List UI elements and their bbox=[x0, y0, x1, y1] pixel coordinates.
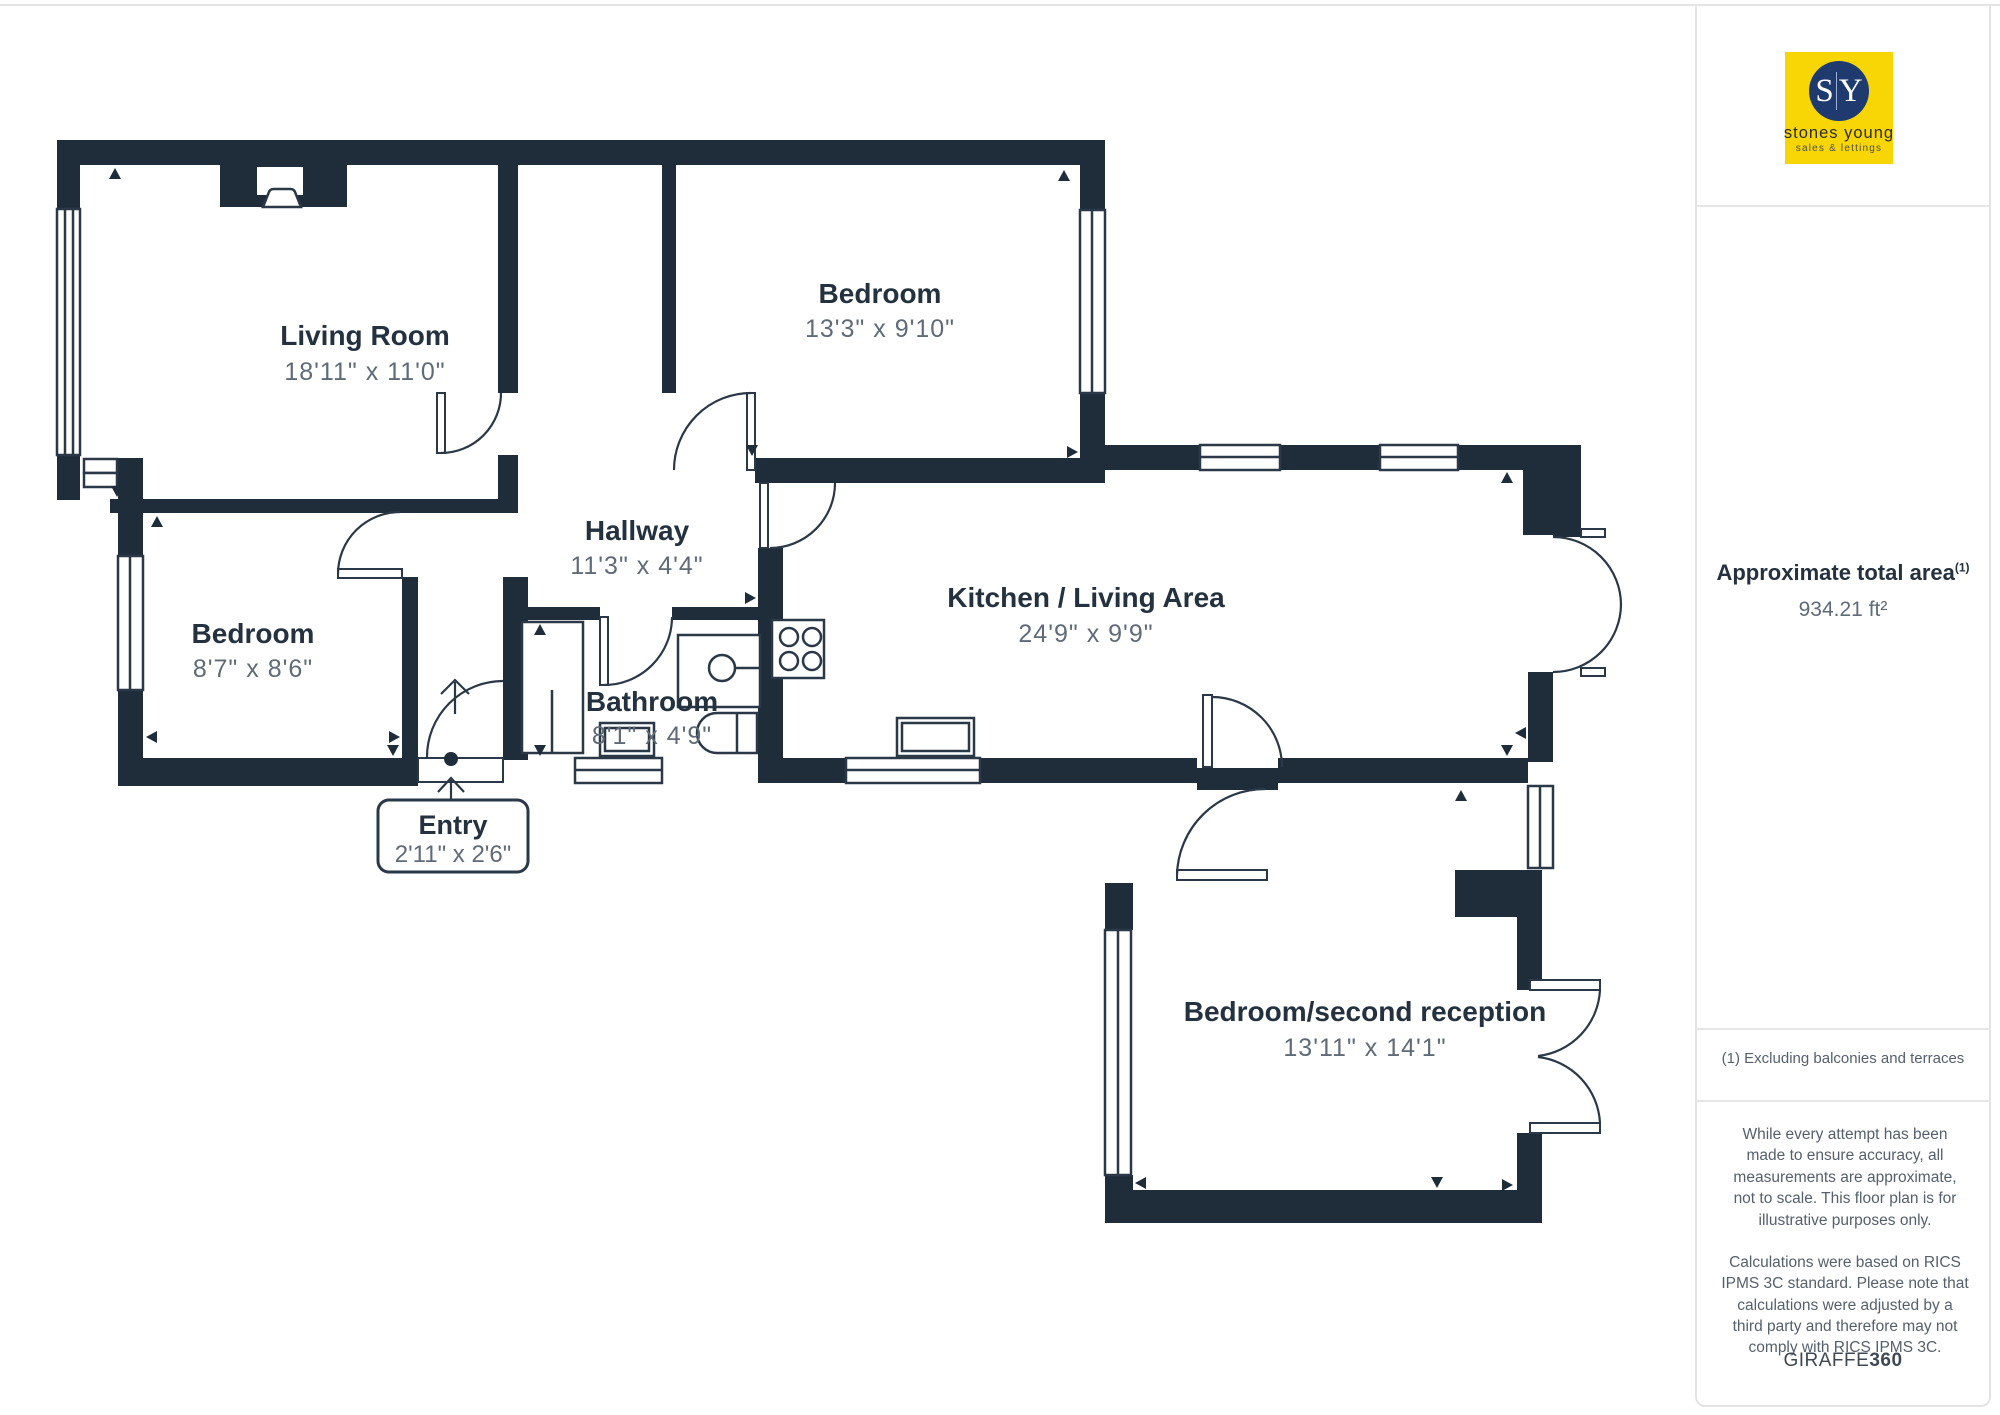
door-leaf bbox=[747, 393, 755, 470]
kitchen-unit-icon bbox=[897, 718, 974, 756]
floorplan-page: Living Room 18'11" x 11'0" Bedroom 13'3"… bbox=[0, 0, 2000, 1415]
info-sidebar: S Y stones young sales & lettings Approx… bbox=[1695, 6, 1991, 1407]
total-area-value: 934.21 ft² bbox=[1697, 598, 1989, 622]
door-leaf bbox=[338, 569, 402, 578]
door-leaf bbox=[437, 393, 445, 453]
window-kitchen-north-2 bbox=[1380, 445, 1458, 470]
door-leaf bbox=[1177, 870, 1267, 880]
agency-monogram: S Y bbox=[1815, 72, 1862, 110]
window-kitchen-south bbox=[846, 758, 980, 783]
door-arc bbox=[427, 681, 503, 757]
sidebar-divider bbox=[1697, 1100, 1989, 1102]
room-dim-living-room: 18'11" x 11'0" bbox=[284, 358, 445, 386]
room-dim-bedroom-second: 13'11" x 14'1" bbox=[1283, 1034, 1446, 1062]
window-bedroom-left-west bbox=[118, 556, 143, 690]
room-name-bedroom-top: Bedroom bbox=[819, 278, 942, 309]
door-arc bbox=[1212, 697, 1282, 767]
room-name-entry: Entry bbox=[418, 810, 487, 840]
window-kitchen-north-1 bbox=[1200, 445, 1280, 470]
giraffe360-brand: GIRAFFE360 bbox=[1697, 1350, 1989, 1372]
door-arc bbox=[338, 512, 400, 574]
window-bedroom-top-east bbox=[1080, 210, 1105, 393]
room-name-living-room: Living Room bbox=[280, 320, 450, 351]
door-leaf bbox=[1530, 980, 1600, 990]
room-name-bathroom: Bathroom bbox=[586, 686, 718, 717]
door-leaf bbox=[760, 483, 768, 548]
shower-cabinet-icon bbox=[522, 622, 583, 753]
monogram-divider bbox=[1836, 72, 1837, 110]
door-leaf bbox=[600, 617, 608, 685]
door-arc bbox=[441, 393, 501, 453]
room-dim-hallway: 11'3" x 4'4" bbox=[570, 552, 703, 580]
door-arc bbox=[604, 617, 672, 685]
sidebar-divider bbox=[1697, 1028, 1989, 1030]
room-dim-bathroom: 8'1" x 4'9" bbox=[592, 722, 712, 750]
door-leaf bbox=[1203, 695, 1212, 767]
door-arc bbox=[1538, 1057, 1600, 1123]
room-dim-bedroom-top: 13'3" x 9'10" bbox=[805, 315, 955, 343]
room-labels: Living Room 18'11" x 11'0" Bedroom 13'3"… bbox=[192, 278, 1547, 1062]
total-area-block: Approximate total area(1) 934.21 ft² bbox=[1697, 560, 1989, 622]
room-dim-kitchen: 24'9" x 9'9" bbox=[1018, 620, 1153, 648]
disclaimer-paragraph-1: While every attempt has been made to ens… bbox=[1721, 1124, 1969, 1231]
agency-logo: S Y stones young sales & lettings bbox=[1785, 52, 1893, 164]
agency-logo-monogram-circle: S Y bbox=[1809, 61, 1869, 121]
window-bedroom-second-west bbox=[1105, 930, 1131, 1175]
door-threshold bbox=[1581, 668, 1605, 676]
door-arc bbox=[674, 393, 751, 470]
entry-label-box: Entry 2'11" x 2'6" bbox=[378, 800, 528, 872]
door-arc bbox=[1553, 604, 1621, 672]
disclaimer-paragraph-2: Calculations were based on RICS IPMS 3C … bbox=[1721, 1252, 1969, 1359]
door-arc bbox=[1538, 990, 1600, 1056]
door-arc bbox=[770, 483, 835, 548]
windows bbox=[57, 209, 1553, 1175]
window-living-room-west bbox=[57, 209, 80, 455]
area-footnote: (1) Excluding balconies and terraces bbox=[1697, 1050, 1989, 1067]
door-leaf bbox=[1530, 1123, 1600, 1133]
room-dim-bedroom-left: 8'7" x 8'6" bbox=[193, 655, 313, 683]
room-dim-entry: 2'11" x 2'6" bbox=[395, 841, 512, 868]
room-name-bedroom-second: Bedroom/second reception bbox=[1184, 996, 1547, 1027]
entry-point-dot bbox=[444, 752, 458, 766]
room-name-kitchen: Kitchen / Living Area bbox=[947, 582, 1225, 613]
entry-threshold bbox=[418, 758, 503, 782]
window-bathroom-south bbox=[575, 758, 662, 783]
room-name-bedroom-left: Bedroom bbox=[192, 618, 315, 649]
room-name-hallway: Hallway bbox=[585, 515, 690, 546]
agency-tagline: sales & lettings bbox=[1796, 143, 1882, 154]
window-vestibule-east bbox=[1528, 786, 1553, 868]
disclaimer-text: While every attempt has been made to ens… bbox=[1721, 1124, 1969, 1380]
porch-steps-icon bbox=[84, 459, 117, 487]
hob-icon bbox=[772, 620, 824, 678]
agency-name: stones young bbox=[1784, 124, 1894, 143]
door-arc bbox=[1553, 537, 1621, 605]
footnote-ref: (1) bbox=[1955, 561, 1970, 575]
door-arc bbox=[1177, 789, 1265, 875]
total-area-title: Approximate total area(1) bbox=[1697, 560, 1989, 586]
door-threshold bbox=[1581, 529, 1605, 537]
sidebar-divider bbox=[1697, 205, 1989, 207]
